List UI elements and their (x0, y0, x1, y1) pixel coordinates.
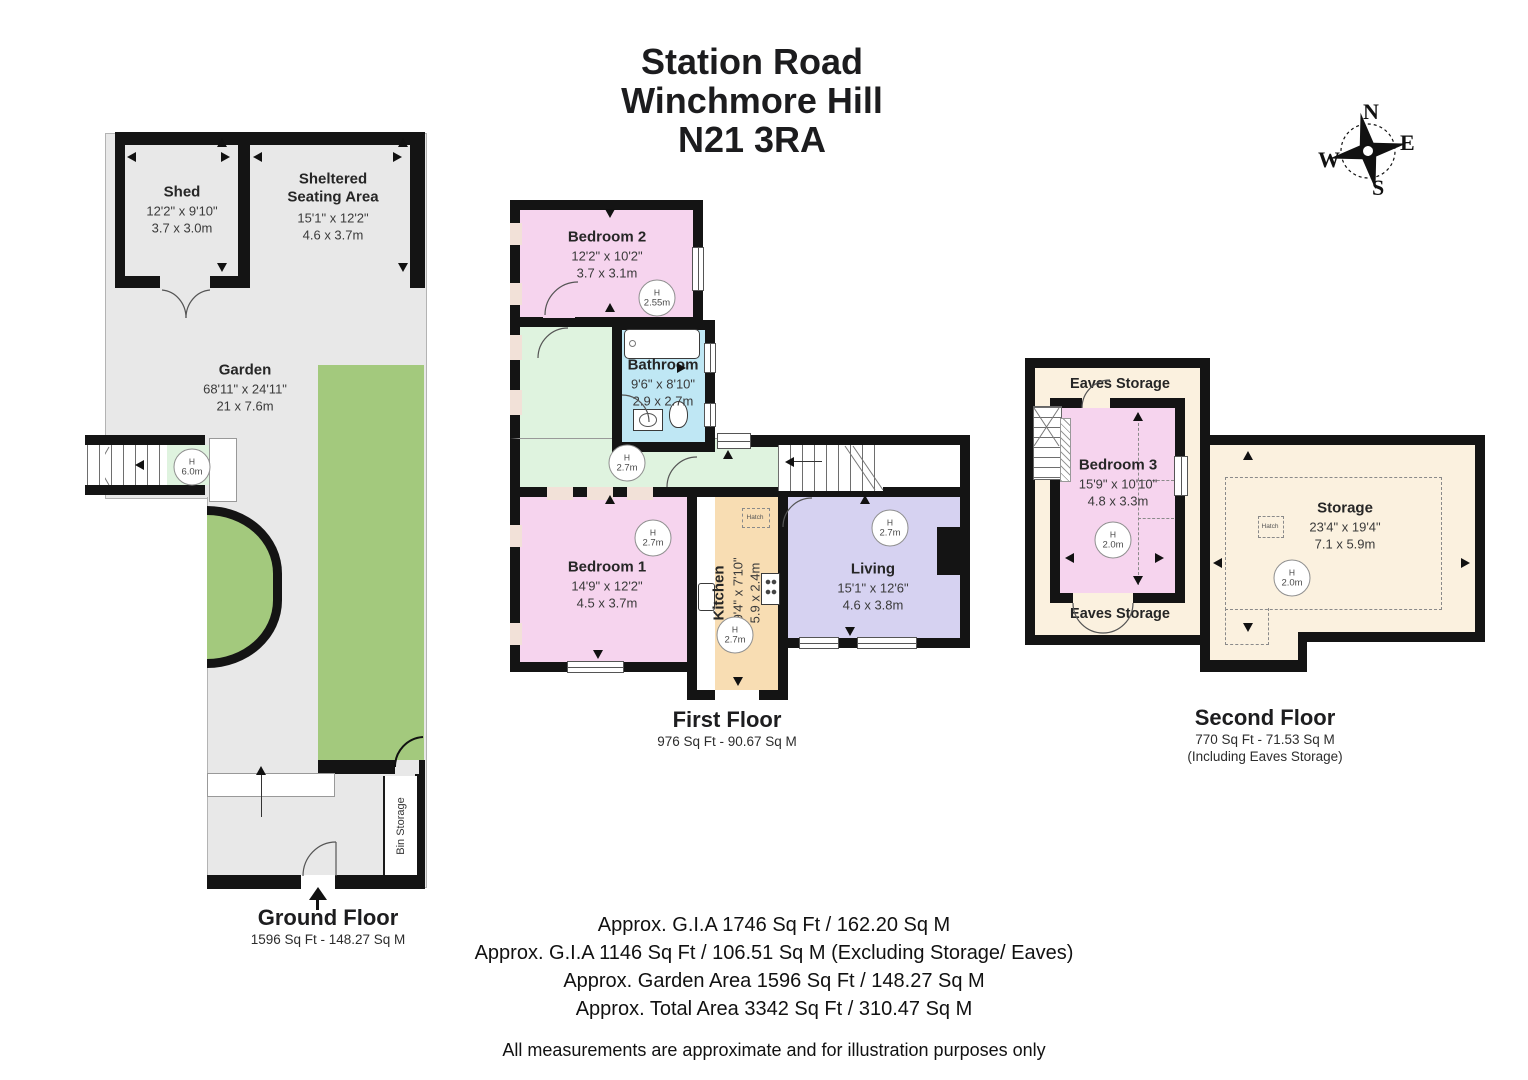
first-floor-area: 976 Sq Ft - 90.67 Sq M (577, 733, 877, 750)
bedroom3-label: Bedroom 3 15'9" x 10'10" 4.8 x 3.3m (1058, 457, 1178, 510)
bedroom1-height-badge: H 2.7m (635, 520, 672, 557)
eaves-bottom-name: Eaves Storage (1070, 605, 1170, 623)
living-dims-ft: 15'1" x 12'6" (837, 581, 908, 598)
kitchen-dims-m: 5.9 x 2.4m (747, 503, 764, 683)
height-value: 6.0m (181, 466, 202, 477)
bedroom2-dims-ft: 12'2" x 10'2" (568, 249, 646, 266)
sheltered-name: Sheltered Seating Area (270, 171, 396, 207)
eaves-bottom-label: Eaves Storage (1070, 605, 1170, 625)
title-line-2: Winchmore Hill (452, 81, 1052, 120)
bedroom2-name: Bedroom 2 (568, 229, 646, 247)
wall-arrow (1213, 558, 1222, 568)
sink (633, 409, 663, 431)
garden-step (207, 773, 335, 797)
bedroom3-name: Bedroom 3 (1058, 457, 1178, 475)
wall-arrow (677, 363, 686, 373)
wall-arrow (1133, 412, 1143, 421)
bedroom1-label: Bedroom 1 14'9" x 12'2" 4.5 x 3.7m (568, 559, 646, 612)
bathroom-window (704, 343, 716, 373)
bedroom1-dims-ft: 14'9" x 12'2" (568, 579, 646, 596)
stairs-direction-arrow (135, 460, 144, 470)
hall-height: 2.7m (616, 462, 637, 473)
bedroom3-height: 2.0m (1102, 539, 1123, 550)
living-window (799, 637, 839, 649)
wardrobe-reveal (627, 487, 653, 500)
sheltered-dims-ft: 15'1" x 12'2" (270, 211, 396, 228)
area-summary-line: Approx. G.I.A 1746 Sq Ft / 162.20 Sq M (274, 911, 1274, 939)
wall-arrow (860, 495, 870, 504)
bedroom2-height-badge: H 2.55m (639, 280, 676, 317)
compass-s-label: S (1372, 175, 1384, 200)
eaves-top-label: Eaves Storage (1070, 375, 1170, 395)
living-name: Living (837, 561, 908, 579)
shed-door-gap (160, 276, 210, 290)
height-h: H (189, 457, 195, 466)
bin-storage-room: Bin Storage (383, 776, 417, 875)
storage-dims-m: 7.1 x 5.9m (1309, 536, 1380, 553)
garden-dims-ft: 68'11" x 24'11" (203, 382, 287, 399)
kitchen-height-badge: H 2.7m (717, 617, 754, 654)
area-summary-line: Approx. G.I.A 1146 Sq Ft / 106.51 Sq M (… (274, 939, 1274, 967)
bedroom2-dims-m: 3.7 x 3.1m (568, 265, 646, 282)
bedroom3-top-door-gap (1082, 398, 1110, 408)
second-floor-title: Second Floor 770 Sq Ft - 71.53 Sq M (Inc… (1115, 705, 1415, 765)
kitchen-dims-ft: 19'4" x 7'10" (731, 503, 748, 683)
wall-arrow (1133, 576, 1143, 585)
living-window (857, 637, 917, 649)
door-reveal (510, 335, 522, 360)
wall-arrow (605, 495, 615, 504)
wall-arrow (217, 138, 227, 147)
bedroom2-door-gap (543, 309, 575, 318)
bedroom3-bottom-door-gap (1073, 593, 1133, 603)
compass-e-label: E (1400, 130, 1415, 155)
living-dims-m: 4.6 x 3.8m (837, 597, 908, 614)
wall-arrow (733, 677, 743, 686)
kitchen-name: Kitchen (711, 503, 729, 683)
sheltered-label: Sheltered Seating Area 15'1" x 12'2" 4.6… (270, 171, 396, 244)
kitchen-hatch-label: Hatch (742, 508, 768, 526)
shed-label: Shed 12'2" x 9'10" 3.7 x 3.0m (146, 184, 217, 237)
wall-arrow (253, 152, 262, 162)
bathroom-name: Bathroom (628, 357, 699, 375)
wall-arrow (605, 209, 615, 218)
second-floor-name: Second Floor (1115, 705, 1415, 731)
wall-arrow (1243, 623, 1253, 632)
wall-arrow (593, 650, 603, 659)
garden-stairs-height-badge: H 6.0m (174, 449, 211, 486)
stairs-top-wall (85, 435, 205, 445)
compass-n-label: N (1363, 99, 1379, 124)
wall-arrow (1065, 553, 1074, 563)
chimney-pier (937, 527, 965, 575)
stairs-arrow-stem (794, 461, 822, 462)
sheltered-dims-m: 4.6 x 3.7m (270, 227, 396, 244)
second-floor-note: (Including Eaves Storage) (1115, 748, 1415, 765)
entrance-arrow (309, 887, 327, 900)
kitchen-label: Kitchen 19'4" x 7'10" 5.9 x 2.4m (711, 503, 764, 683)
wall-arrow (1243, 451, 1253, 460)
area-summary-line: Approx. Garden Area 1596 Sq Ft / 148.27 … (274, 967, 1274, 995)
living-height-badge: H 2.7m (872, 510, 909, 547)
bedroom2-window (692, 247, 704, 291)
compass-w-label: W (1318, 147, 1340, 172)
storage-label: Storage 23'4" x 19'4" 7.1 x 5.9m (1309, 500, 1380, 553)
shed-name: Shed (146, 184, 217, 202)
bathtub (624, 329, 700, 359)
staircase-block (778, 435, 970, 492)
disclaimer-note: All measurements are approximate and for… (274, 1040, 1274, 1061)
second-floor-area: 770 Sq Ft - 71.53 Sq M (1115, 731, 1415, 748)
hob-rings (764, 576, 777, 602)
hall-vertical (510, 320, 622, 455)
wardrobe-reveal (547, 487, 573, 500)
bin-storage-label: Bin Storage (395, 797, 407, 854)
first-floor-plan: Bedroom 2 12'2" x 10'2" 3.7 x 3.1m H 2.5… (505, 195, 975, 700)
door-reveal (510, 223, 522, 245)
ground-floor-plan: Shed 12'2" x 9'10" 3.7 x 3.0m Sheltered … (105, 130, 465, 920)
storage-dims-ft: 23'4" x 19'4" (1309, 520, 1380, 537)
title-line-3: N21 3RA (452, 120, 1052, 159)
door-reveal (510, 390, 522, 415)
bath-tap (629, 340, 636, 347)
kitchen-door-gap (715, 690, 759, 700)
bedroom2-height: 2.55m (644, 297, 670, 308)
bathroom-label: Bathroom 9'6" x 8'10" 2.9 x 2.7m (628, 357, 699, 410)
bedroom1-height: 2.7m (642, 537, 663, 548)
hall-height-badge: H 2.7m (609, 445, 646, 482)
door-reveal (510, 623, 522, 645)
bedroom1-window (567, 661, 624, 673)
hob (761, 573, 780, 605)
area-summary-line: Approx. Total Area 3342 Sq Ft / 310.47 S… (274, 995, 1274, 1023)
storage-height: 2.0m (1281, 577, 1302, 588)
wall-arrow (398, 263, 408, 272)
page-title: Station Road Winchmore Hill N21 3RA (452, 42, 1052, 159)
wall-arrow (221, 152, 230, 162)
wall-arrow (398, 138, 408, 147)
sink-basin (639, 413, 657, 427)
shed-dims-ft: 12'2" x 9'10" (146, 204, 217, 221)
garden-dims-m: 21 x 7.6m (203, 398, 287, 415)
first-floor-title: First Floor 976 Sq Ft - 90.67 Sq M (577, 707, 877, 750)
compass-icon: N E W S (1312, 92, 1430, 210)
garden-stairs (87, 445, 167, 485)
storage-height-badge: H 2.0m (1274, 560, 1311, 597)
bedroom1-name: Bedroom 1 (568, 559, 646, 577)
living-label: Living 15'1" x 12'6" 4.6 x 3.8m (837, 561, 908, 614)
bathroom-window (704, 403, 716, 427)
bedroom1-dims-m: 4.5 x 3.7m (568, 595, 646, 612)
stairs-direction-arrow (785, 457, 794, 467)
wall-arrow (1461, 558, 1470, 568)
area-summary: Approx. G.I.A 1746 Sq Ft / 162.20 Sq M A… (274, 911, 1274, 1023)
stairs-bottom-wall (85, 485, 205, 495)
door-reveal (510, 283, 522, 305)
garden-name: Garden (203, 362, 287, 380)
floorplan-page: Station Road Winchmore Hill N21 3RA N E … (0, 0, 1528, 1080)
kitchen-height: 2.7m (724, 634, 745, 645)
storage-name: Storage (1309, 500, 1380, 518)
first-floor-name: First Floor (577, 707, 877, 733)
hall-window (717, 433, 751, 449)
wall-arrow (1155, 553, 1164, 563)
wall-arrow (845, 627, 855, 636)
door-reveal (510, 525, 522, 547)
path-arrow-stem (261, 775, 262, 817)
wall-arrow (393, 152, 402, 162)
stairs-landing (209, 438, 237, 502)
garden-label: Garden 68'11" x 24'11" 21 x 7.6m (203, 362, 287, 415)
bathroom-dims-m: 2.9 x 2.7m (628, 393, 699, 410)
shed-dims-m: 3.7 x 3.0m (146, 220, 217, 237)
eaves-top-name: Eaves Storage (1070, 375, 1170, 393)
wall-arrow (605, 303, 615, 312)
lawn (318, 365, 424, 763)
second-floor-plan: Bedroom 3 15'9" x 10'10" 4.8 x 3.3m H 2.… (1025, 358, 1485, 688)
storage-hatch-label: Hatch (1258, 516, 1282, 536)
wall-arrow (723, 450, 733, 459)
path-arrow (256, 766, 266, 775)
bedroom3-dims-ft: 15'9" x 10'10" (1058, 477, 1178, 494)
living-height: 2.7m (879, 527, 900, 538)
bedroom3-dims-m: 4.8 x 3.3m (1058, 493, 1178, 510)
bedroom3-height-badge: H 2.0m (1095, 522, 1132, 559)
eaves-dashed-line (1138, 518, 1174, 520)
title-line-1: Station Road (452, 42, 1052, 81)
bathroom-dims-ft: 9'6" x 8'10" (628, 377, 699, 394)
lawn-door-gap (395, 760, 419, 774)
bedroom2-label: Bedroom 2 12'2" x 10'2" 3.7 x 3.1m (568, 229, 646, 282)
wall-arrow (127, 152, 136, 162)
staircase-treads (778, 445, 883, 491)
wall-arrow (217, 263, 227, 272)
